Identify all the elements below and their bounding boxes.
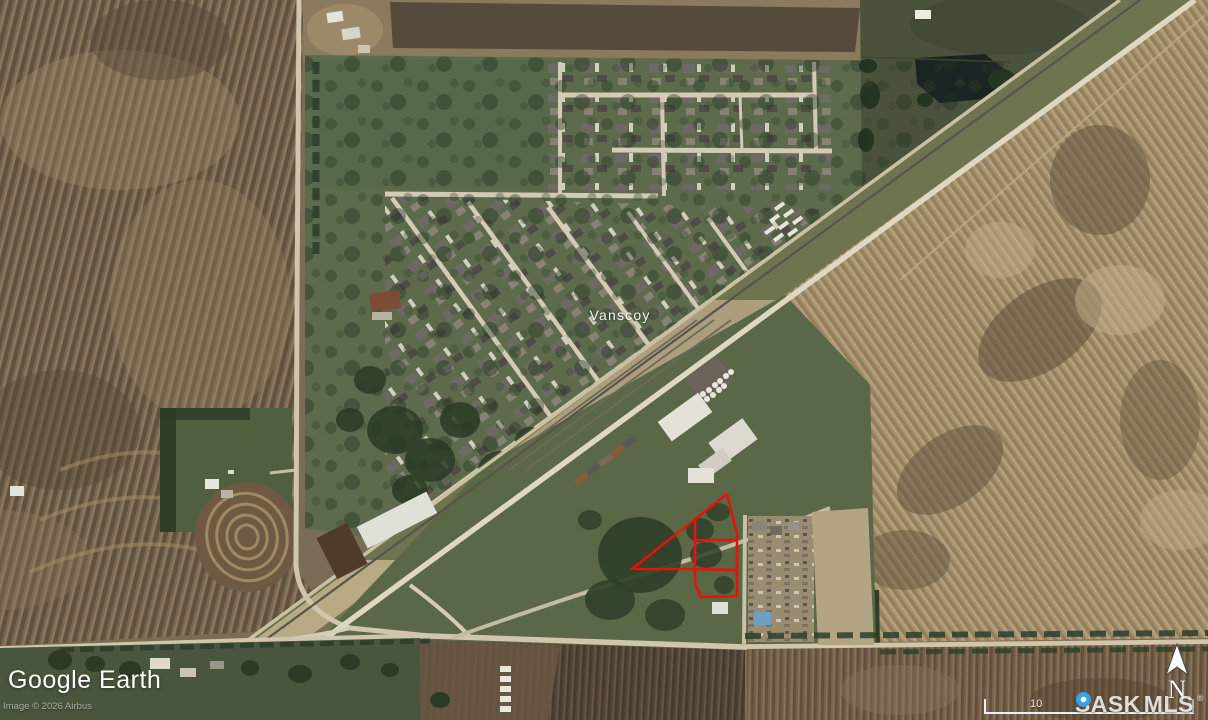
map-pin-icon xyxy=(1075,691,1092,708)
sask-mls-logo-part2: MLS xyxy=(1144,691,1194,718)
north-arrow-icon xyxy=(1166,644,1188,675)
place-label: Vanscoy xyxy=(570,307,670,323)
imagery-attribution: Image © 2026 Airbus xyxy=(3,701,92,712)
blue-roof-shed xyxy=(754,612,771,625)
shed-left-edge xyxy=(10,486,24,496)
google-earth-watermark: Google Earth xyxy=(8,666,161,695)
sask-mls-logo: SASK MLS ® xyxy=(1075,691,1204,718)
satellite-map-image: Vanscoy Google Earth Image © 2026 Airbus… xyxy=(0,0,1208,720)
satellite-canvas xyxy=(0,0,1208,720)
scale-label: 10 xyxy=(1030,698,1042,710)
property-inner-line-divider2 xyxy=(695,569,737,570)
registered-mark: ® xyxy=(1197,693,1204,703)
